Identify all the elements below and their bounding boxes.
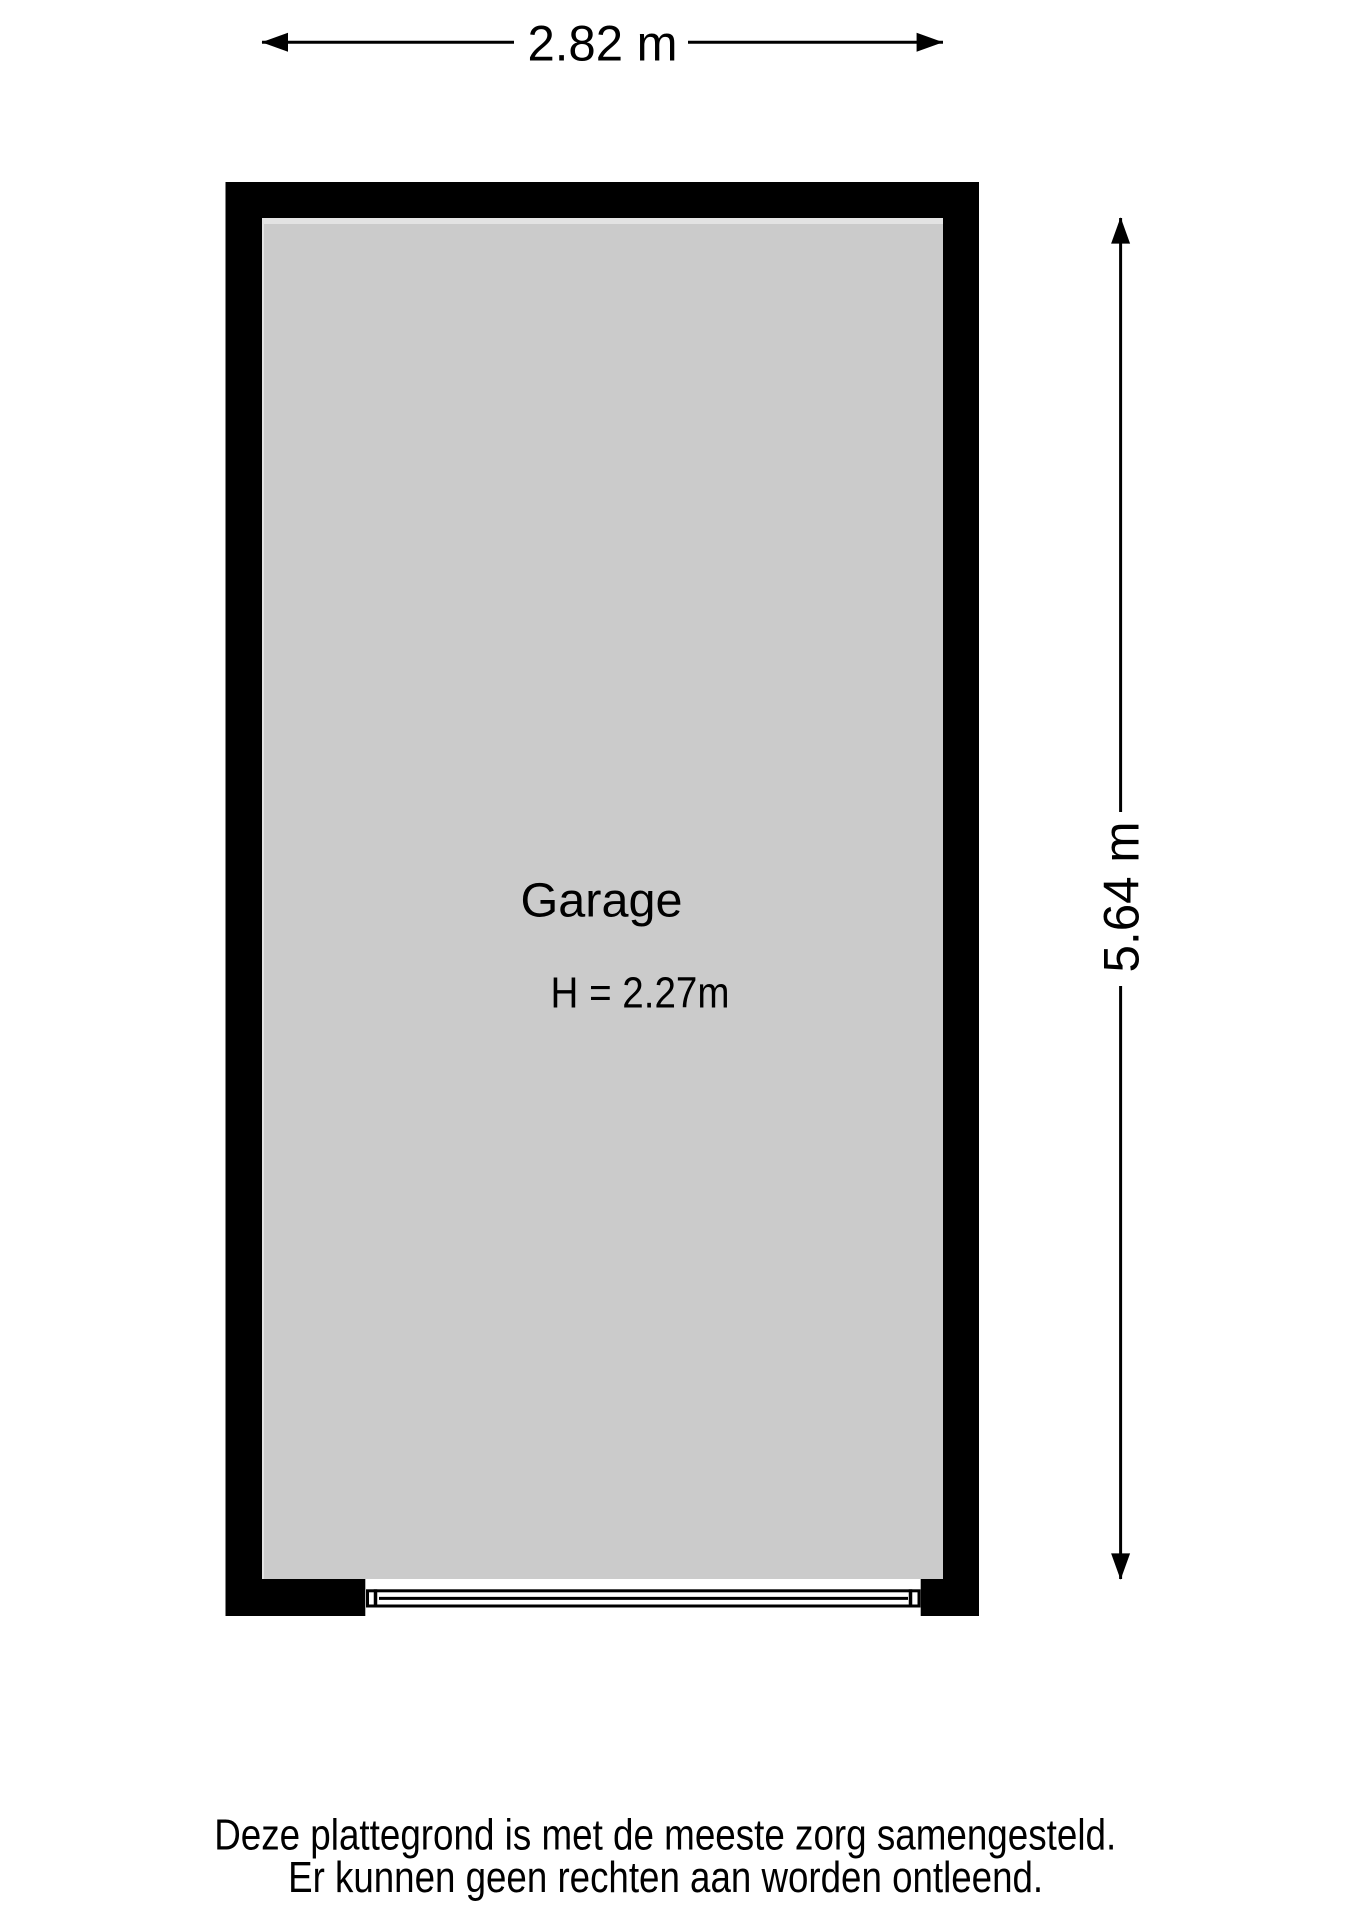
svg-text:5.64 m: 5.64 m — [1094, 822, 1150, 973]
svg-text:H = 2.27m: H = 2.27m — [551, 969, 730, 1018]
svg-text:2.82 m: 2.82 m — [528, 16, 678, 72]
svg-text:Garage: Garage — [521, 875, 683, 928]
svg-text:Er kunnen geen rechten aan wor: Er kunnen geen rechten aan worden ontlee… — [288, 1853, 1043, 1902]
